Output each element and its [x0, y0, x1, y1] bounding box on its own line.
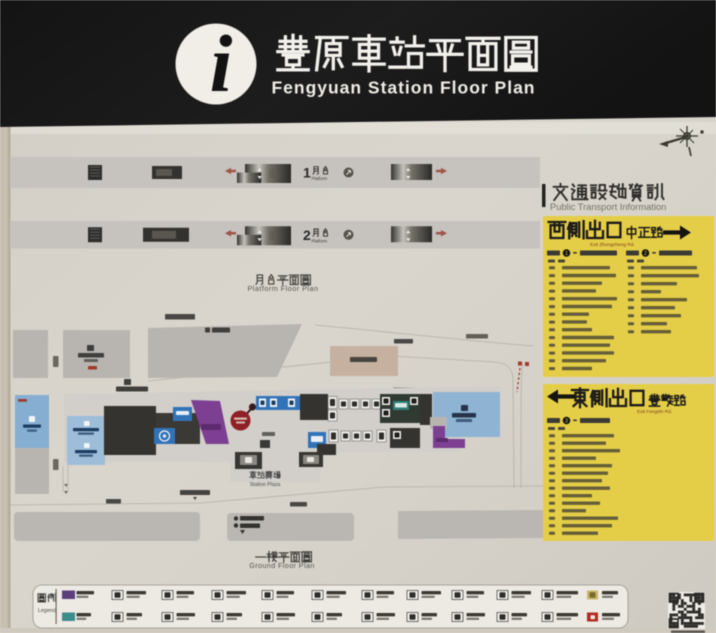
svg-text:Exit Zhongzheng Rd.: Exit Zhongzheng Rd.: [590, 242, 635, 248]
svg-text:Platform: Platform: [312, 238, 328, 243]
svg-text:Platform: Platform: [312, 176, 328, 181]
svg-text:Public Transport Information: Public Transport Information: [550, 202, 666, 212]
svg-text:2: 2: [644, 251, 647, 257]
svg-text:1: 1: [303, 165, 311, 181]
svg-text:Exit Fengshi Rd.: Exit Fengshi Rd.: [637, 409, 672, 415]
svg-text:Ground Floor Plan: Ground Floor Plan: [249, 561, 315, 570]
svg-text:i: i: [210, 18, 233, 109]
svg-text:Legend: Legend: [38, 608, 56, 614]
svg-text:Fengyuan Station Floor Plan: Fengyuan Station Floor Plan: [272, 78, 535, 98]
svg-text:3: 3: [565, 419, 568, 425]
svg-text:Platform Floor Plan: Platform Floor Plan: [247, 284, 318, 293]
svg-text:1: 1: [565, 251, 568, 257]
svg-text:2: 2: [303, 227, 311, 243]
svg-text:Station Plaza: Station Plaza: [250, 482, 281, 488]
